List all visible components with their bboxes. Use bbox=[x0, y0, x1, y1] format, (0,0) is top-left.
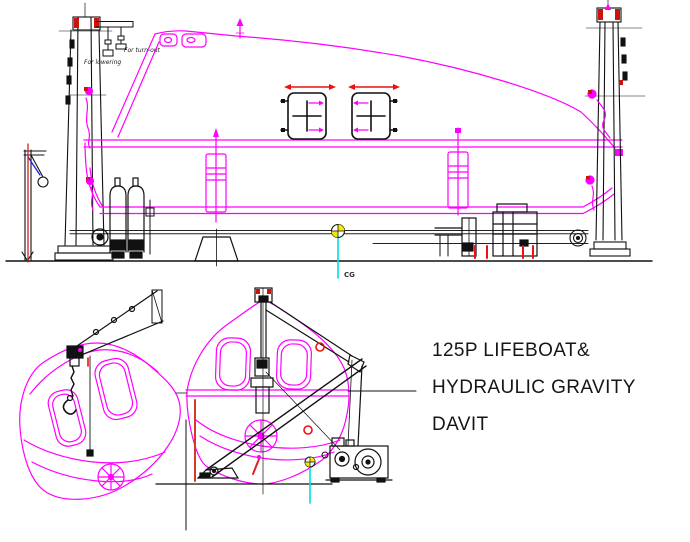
sheave-cap-red-left2 bbox=[598, 9, 603, 20]
davit-arm-outboard bbox=[63, 290, 163, 456]
lifeboat-profile bbox=[84, 18, 623, 214]
painter-ring bbox=[38, 177, 48, 187]
title-line-2: HYDRAULIC GRAVITY bbox=[432, 377, 636, 399]
right-davit-post bbox=[570, 0, 645, 256]
side-elevation-view: For lowering For turn-out bbox=[6, 0, 652, 279]
title-line-1: 125P LIFEBOAT& bbox=[432, 340, 590, 362]
propeller-stowed bbox=[245, 420, 277, 452]
cylinder-fore bbox=[206, 128, 226, 222]
left-davit-post bbox=[55, 3, 113, 260]
hatch-left bbox=[281, 84, 336, 139]
title-line-3: DAVIT bbox=[432, 414, 489, 436]
davit-arm bbox=[270, 302, 352, 356]
keel-support-block bbox=[195, 229, 238, 266]
outboard-end-view bbox=[20, 290, 181, 499]
lifeboat-davit-drawing: For lowering For turn-out bbox=[0, 0, 690, 542]
cylinder-aft bbox=[448, 128, 468, 215]
cg-marker-stowed bbox=[305, 457, 315, 503]
hatch-right-direction-arrow-red bbox=[348, 84, 400, 90]
davit-frame-stowed bbox=[156, 288, 416, 530]
hatch-right bbox=[348, 84, 400, 139]
lowering-handle bbox=[103, 50, 113, 56]
roof-hatch-small bbox=[160, 34, 206, 47]
sheave-cap-red-left bbox=[74, 18, 79, 28]
painter-post bbox=[22, 144, 48, 262]
cg-label: CG bbox=[344, 271, 355, 279]
cradle-rails bbox=[70, 231, 588, 244]
stowed-boat-hull bbox=[186, 300, 349, 484]
propeller-outboard bbox=[98, 464, 124, 490]
outboard-boat-hull bbox=[20, 343, 181, 499]
suspension-cylinders bbox=[206, 128, 468, 222]
roller-red-lower bbox=[304, 426, 312, 434]
stowed-end-view bbox=[156, 288, 416, 530]
escape-hatches bbox=[281, 84, 400, 139]
hook-block bbox=[67, 346, 83, 358]
cg-marker-profile: CG bbox=[332, 225, 356, 280]
hatch-left-direction-arrow-red bbox=[284, 84, 336, 90]
aerial-mast bbox=[236, 18, 244, 38]
stowed-winch bbox=[322, 438, 392, 482]
for-lowering-label: For lowering bbox=[84, 59, 121, 66]
sheave-cap-red-right2 bbox=[615, 9, 620, 20]
cad-drawing-svg: For lowering For turn-out bbox=[0, 0, 690, 542]
lock-lever-red bbox=[253, 459, 259, 474]
